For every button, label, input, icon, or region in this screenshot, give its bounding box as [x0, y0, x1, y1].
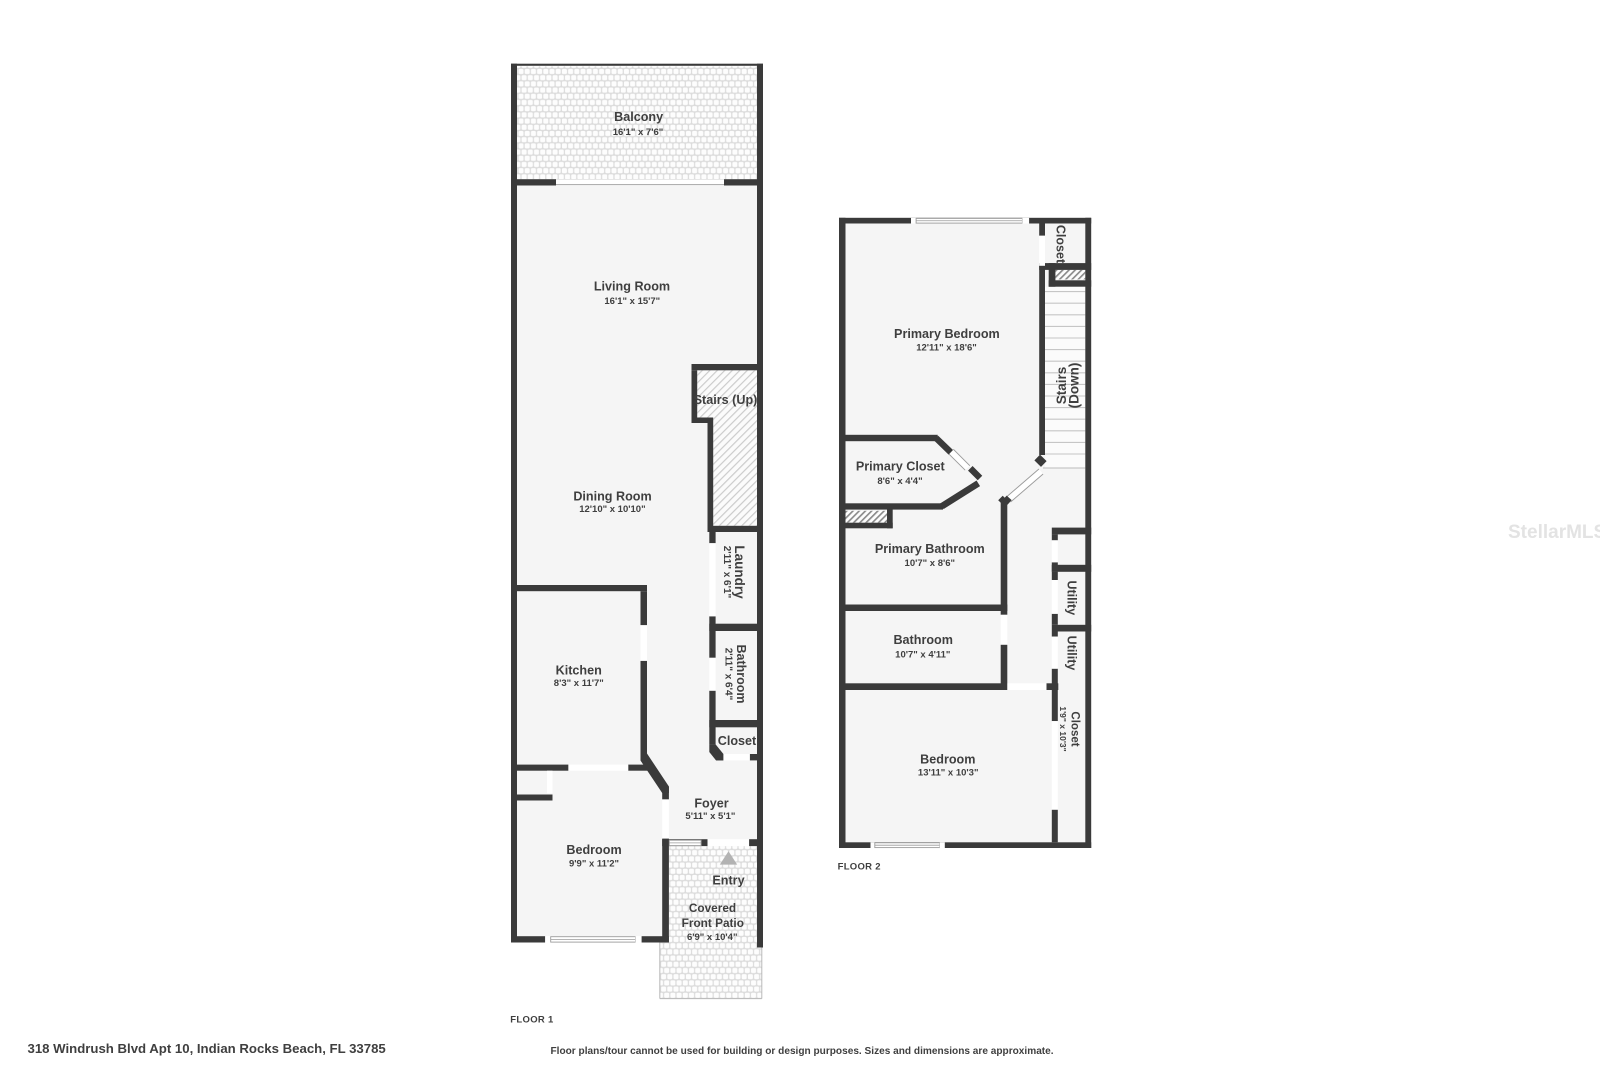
svg-text:16'1" x 15'7": 16'1" x 15'7"	[604, 296, 660, 307]
svg-text:Front Patio: Front Patio	[682, 916, 744, 930]
svg-text:Primary Closet: Primary Closet	[856, 459, 946, 473]
svg-text:Balcony: Balcony	[614, 110, 663, 124]
svg-text:Living Room: Living Room	[594, 279, 670, 293]
svg-text:8'3" x 11'7": 8'3" x 11'7"	[554, 678, 604, 689]
svg-text:6'9" x 10'4": 6'9" x 10'4"	[687, 932, 738, 943]
svg-text:StellarMLS: StellarMLS	[1508, 522, 1600, 543]
svg-text:Stairs (Up): Stairs (Up)	[694, 393, 758, 407]
svg-text:1'9" x 10'3": 1'9" x 10'3"	[1058, 706, 1068, 751]
svg-text:(Down): (Down)	[1067, 363, 1082, 409]
svg-text:Laundry: Laundry	[732, 545, 747, 599]
svg-text:318 Windrush Blvd Apt 10, Indi: 318 Windrush Blvd Apt 10, Indian Rocks B…	[28, 1041, 386, 1056]
svg-text:Kitchen: Kitchen	[556, 663, 602, 677]
svg-text:12'10" x 10'10": 12'10" x 10'10"	[579, 504, 645, 515]
svg-text:Foyer: Foyer	[694, 796, 728, 810]
svg-text:FLOOR 1: FLOOR 1	[510, 1015, 554, 1026]
svg-text:2'11" x 6'1": 2'11" x 6'1"	[721, 546, 732, 599]
svg-text:Bathroom: Bathroom	[734, 644, 748, 703]
svg-text:Floor plans/tour cannot be use: Floor plans/tour cannot be used for buil…	[551, 1046, 1054, 1057]
svg-text:Bedroom: Bedroom	[920, 753, 975, 767]
svg-text:Bedroom: Bedroom	[566, 843, 621, 857]
svg-text:Primary Bathroom: Primary Bathroom	[875, 542, 985, 556]
svg-text:13'11" x 10'3": 13'11" x 10'3"	[918, 768, 979, 779]
svg-text:Dining Room: Dining Room	[573, 490, 651, 504]
svg-text:Closet: Closet	[718, 734, 757, 748]
svg-text:10'7" x 4'11": 10'7" x 4'11"	[895, 650, 950, 661]
svg-text:Utility: Utility	[1065, 636, 1079, 671]
svg-text:9'9" x 11'2": 9'9" x 11'2"	[569, 858, 619, 869]
svg-text:Bathroom: Bathroom	[893, 633, 952, 647]
svg-text:2'11" x 6'4": 2'11" x 6'4"	[723, 648, 734, 701]
svg-text:Entry: Entry	[712, 874, 744, 888]
svg-text:Closet: Closet	[1054, 225, 1068, 264]
svg-text:FLOOR 2: FLOOR 2	[838, 862, 881, 873]
svg-text:Primary Bedroom: Primary Bedroom	[894, 327, 1000, 341]
svg-text:16'1" x 7'6": 16'1" x 7'6"	[613, 127, 664, 138]
svg-text:Covered: Covered	[689, 901, 736, 915]
svg-text:Utility: Utility	[1065, 580, 1079, 615]
svg-text:12'11" x 18'6": 12'11" x 18'6"	[916, 343, 977, 354]
svg-text:5'11" x 5'1": 5'11" x 5'1"	[685, 811, 735, 822]
svg-text:Closet: Closet	[1068, 711, 1080, 746]
svg-text:10'7" x 8'6": 10'7" x 8'6"	[905, 558, 956, 569]
svg-text:8'6" x 4'4": 8'6" x 4'4"	[877, 476, 922, 487]
